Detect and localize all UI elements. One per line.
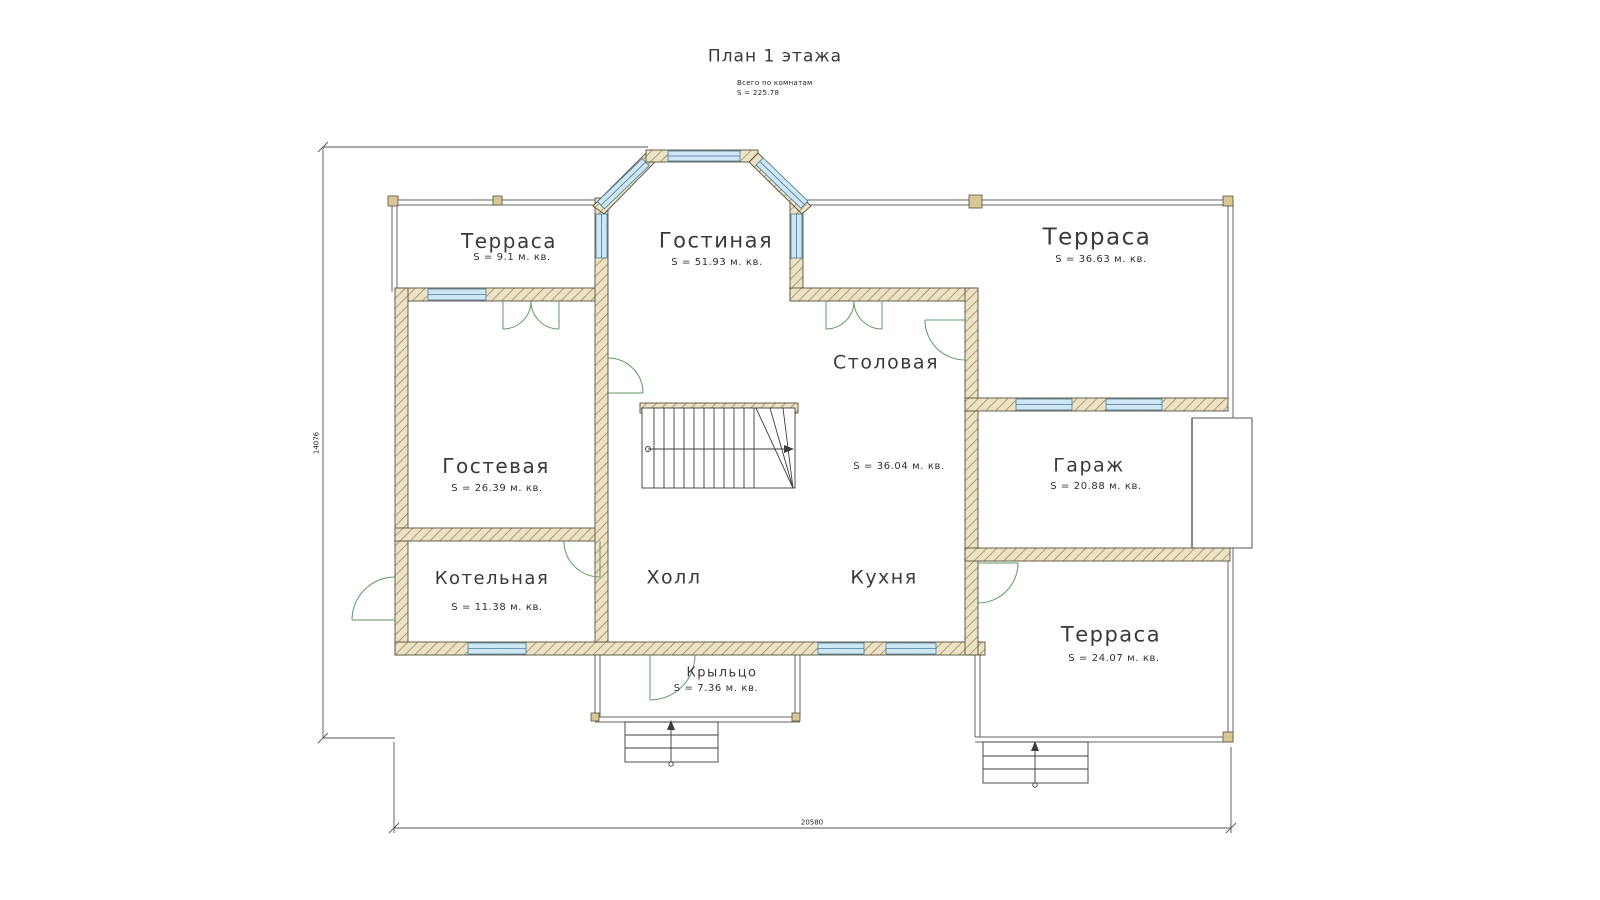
room-label-terrace-bottom-right: Терраса bbox=[1061, 625, 1161, 646]
room-area-terrace-top-right: S = 36.63 м. кв. bbox=[1055, 255, 1147, 265]
summary-caption: Всего по комнатам bbox=[737, 80, 813, 87]
room-label-terrace-top-left: Терраса bbox=[461, 231, 557, 251]
room-label-hall: Холл bbox=[647, 569, 702, 588]
room-label-kitchen: Кухня bbox=[850, 569, 917, 588]
room-label-porch: Крыльцо bbox=[686, 667, 757, 680]
page-title: План 1 этажа bbox=[708, 49, 842, 66]
room-area-porch: S = 7.36 м. кв. bbox=[674, 684, 759, 694]
summary-total: S = 225.78 bbox=[737, 90, 779, 97]
staircase bbox=[642, 408, 795, 488]
room-label-guest: Гостевая bbox=[442, 456, 549, 476]
room-label-boiler: Котельная bbox=[435, 570, 550, 588]
room-area-terrace-top-left: S = 9.1 м. кв. bbox=[473, 253, 551, 263]
terrace-steps bbox=[983, 741, 1088, 787]
dimension-vertical: 14076 bbox=[314, 432, 321, 454]
room-label-dining: Столовая bbox=[833, 354, 939, 373]
room-label-garage: Гараж bbox=[1053, 457, 1125, 476]
floor-plan-drawing bbox=[0, 0, 1600, 900]
dimension-horizontal: 20580 bbox=[801, 820, 823, 827]
room-area-dining: S = 36.04 м. кв. bbox=[853, 462, 945, 472]
room-area-terrace-bottom-right: S = 24.07 м. кв. bbox=[1068, 654, 1160, 664]
room-area-boiler: S = 11.38 м. кв. bbox=[451, 603, 543, 613]
floor-plan: План 1 этажа Всего по комнатам S = 225.7… bbox=[0, 0, 1600, 900]
room-area-living: S = 51.93 м. кв. bbox=[671, 258, 763, 268]
room-area-garage: S = 20.88 м. кв. bbox=[1050, 482, 1142, 492]
room-label-terrace-top-right: Терраса bbox=[1043, 227, 1152, 250]
room-label-living: Гостиная bbox=[659, 231, 773, 252]
room-area-guest: S = 26.39 м. кв. bbox=[451, 484, 543, 494]
garage-door bbox=[1192, 418, 1252, 548]
porch-steps bbox=[625, 720, 718, 766]
